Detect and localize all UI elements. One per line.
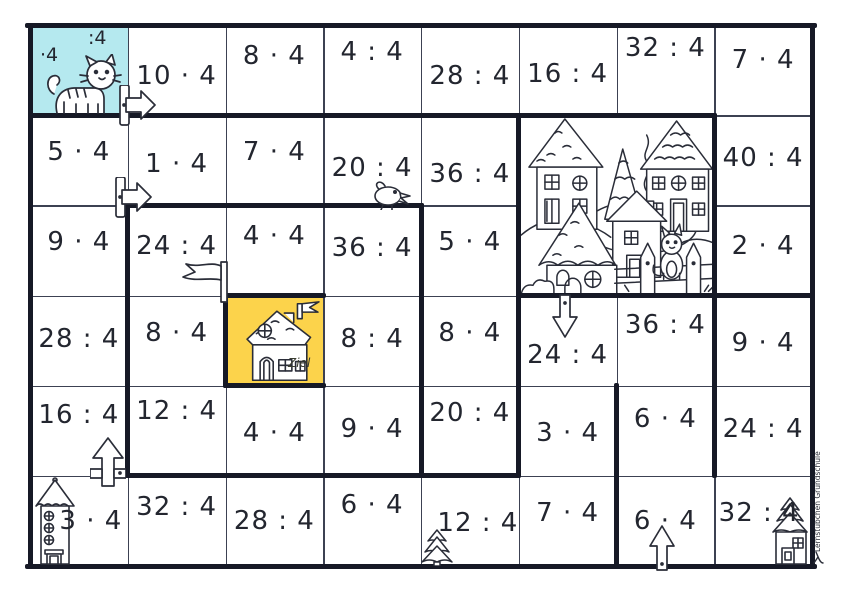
cell-r3c1[interactable]: 9 · 4 [30, 205, 128, 295]
cell-r1c6[interactable]: 16 : 4 [519, 25, 617, 115]
task-label: 7 · 4 [243, 137, 306, 167]
task-label: 9 · 4 [341, 414, 404, 444]
cell-r4c7[interactable]: 36 : 4 [617, 296, 715, 386]
task-label: 32 : 4 [136, 492, 217, 522]
task-label: 1 · 4 [145, 149, 208, 179]
cell-r1c2[interactable]: 10 · 4 [128, 25, 226, 115]
cell-r2c5[interactable]: 36 : 4 [421, 115, 519, 205]
task-label: 8 · 4 [438, 318, 501, 348]
cell-r6c5[interactable]: 12 : 4 [421, 476, 519, 566]
task-label: 28 : 4 [429, 61, 510, 91]
cell-r4c2[interactable]: 8 · 4 [128, 296, 226, 386]
cell-r6c8[interactable]: 32 : 4 [714, 476, 812, 566]
credit-text: Lernstübchen Grundschule [813, 420, 827, 552]
task-label: 40 : 4 [723, 143, 804, 173]
task-label: 28 : 4 [234, 506, 315, 536]
task-label: 6 · 4 [634, 506, 697, 536]
task-label: 2 · 4 [732, 231, 795, 261]
start-div-label: :4 [88, 27, 107, 49]
cell-r4c5[interactable]: 8 · 4 [421, 296, 519, 386]
cell-r1c8[interactable]: 7 · 4 [714, 25, 812, 115]
cell-r4c4[interactable]: 8 : 4 [323, 296, 421, 386]
task-label: 24 : 4 [723, 414, 804, 444]
task-label: 4 · 4 [243, 221, 306, 251]
task-label: 6 · 4 [341, 490, 404, 520]
cell-r6c7[interactable]: 6 · 4 [617, 476, 715, 566]
task-label: 7 · 4 [732, 45, 795, 75]
task-label: 12 : 4 [437, 508, 518, 538]
task-label: 12 : 4 [136, 396, 217, 426]
village-illustration [519, 115, 715, 295]
goal-house-icon [230, 300, 322, 384]
goal-label: Ziel [288, 356, 310, 370]
cell-r4c6[interactable]: 24 : 4 [519, 296, 617, 386]
start-mul-label: ·4 [40, 44, 58, 66]
task-label: 9 · 4 [47, 227, 110, 257]
cell-r3c4[interactable]: 36 : 4 [323, 205, 421, 295]
cell-r1c3[interactable]: 8 · 4 [226, 25, 324, 115]
task-label: 28 : 4 [38, 324, 119, 354]
cell-r3c2[interactable]: 24 : 4 [128, 205, 226, 295]
task-label: 24 : 4 [527, 340, 608, 370]
task-label: 20 : 4 [429, 398, 510, 428]
cell-r5c5[interactable]: 20 : 4 [421, 386, 519, 476]
cell-r1c4[interactable]: 4 : 4 [323, 25, 421, 115]
task-label: 5 · 4 [438, 227, 501, 257]
task-label: 6 · 4 [634, 404, 697, 434]
task-label: 3 · 4 [536, 418, 599, 448]
cell-r6c1[interactable]: 3 · 4 [30, 476, 128, 566]
task-label: 7 · 4 [536, 498, 599, 528]
cell-r3c3[interactable]: 4 · 4 [226, 205, 324, 295]
cell-r1c7[interactable]: 32 : 4 [617, 25, 715, 115]
cell-r5c6[interactable]: 3 · 4 [519, 386, 617, 476]
cell-r6c2[interactable]: 32 : 4 [128, 476, 226, 566]
cell-r3c5[interactable]: 5 · 4 [421, 205, 519, 295]
task-label: 32 : 4 [625, 33, 706, 63]
task-label: 36 : 4 [625, 310, 706, 340]
cell-r5c4[interactable]: 9 · 4 [323, 386, 421, 476]
cell-r2c1[interactable]: 5 · 4 [30, 115, 128, 205]
cell-r5c2[interactable]: 12 : 4 [128, 386, 226, 476]
cell-r5c1[interactable]: 16 : 4 [30, 386, 128, 476]
task-label: 4 · 4 [243, 418, 306, 448]
cell-r5c8[interactable]: 24 : 4 [714, 386, 812, 476]
task-label: 9 · 4 [732, 328, 795, 358]
task-label: 16 : 4 [38, 400, 119, 430]
village-block [519, 115, 715, 295]
cell-r2c4[interactable]: 20 : 4 [323, 115, 421, 205]
cell-r2c8[interactable]: 40 : 4 [714, 115, 812, 205]
task-label: 8 · 4 [145, 318, 208, 348]
task-label: 3 · 4 [59, 506, 122, 536]
task-label: 16 : 4 [527, 59, 608, 89]
task-label: 20 : 4 [332, 153, 413, 183]
task-label: 10 · 4 [136, 61, 216, 91]
cell-r6c4[interactable]: 6 · 4 [323, 476, 421, 566]
cell-r2c2[interactable]: 1 · 4 [128, 115, 226, 205]
worksheet-page: ·4 :4 [0, 0, 842, 595]
cell-r5c7[interactable]: 6 · 4 [617, 386, 715, 476]
cell-r2c3[interactable]: 7 · 4 [226, 115, 324, 205]
task-label: 5 · 4 [47, 137, 110, 167]
credit-logo-icon [812, 551, 824, 565]
task-label: 24 : 4 [136, 231, 217, 261]
cell-r3c8[interactable]: 2 · 4 [714, 205, 812, 295]
cell-r4c1[interactable]: 28 : 4 [30, 296, 128, 386]
cell-r4c8[interactable]: 9 · 4 [714, 296, 812, 386]
task-label: 8 · 4 [243, 41, 306, 71]
cell-r6c3[interactable]: 28 : 4 [226, 476, 324, 566]
task-label: 36 : 4 [429, 159, 510, 189]
task-label: 32 : 4 [719, 498, 800, 528]
task-label: 8 : 4 [340, 324, 403, 354]
task-label: 4 : 4 [340, 37, 403, 67]
task-label: 36 : 4 [332, 233, 413, 263]
cell-r1c5[interactable]: 28 : 4 [421, 25, 519, 115]
cell-r5c3[interactable]: 4 · 4 [226, 386, 324, 476]
cell-r6c6[interactable]: 7 · 4 [519, 476, 617, 566]
